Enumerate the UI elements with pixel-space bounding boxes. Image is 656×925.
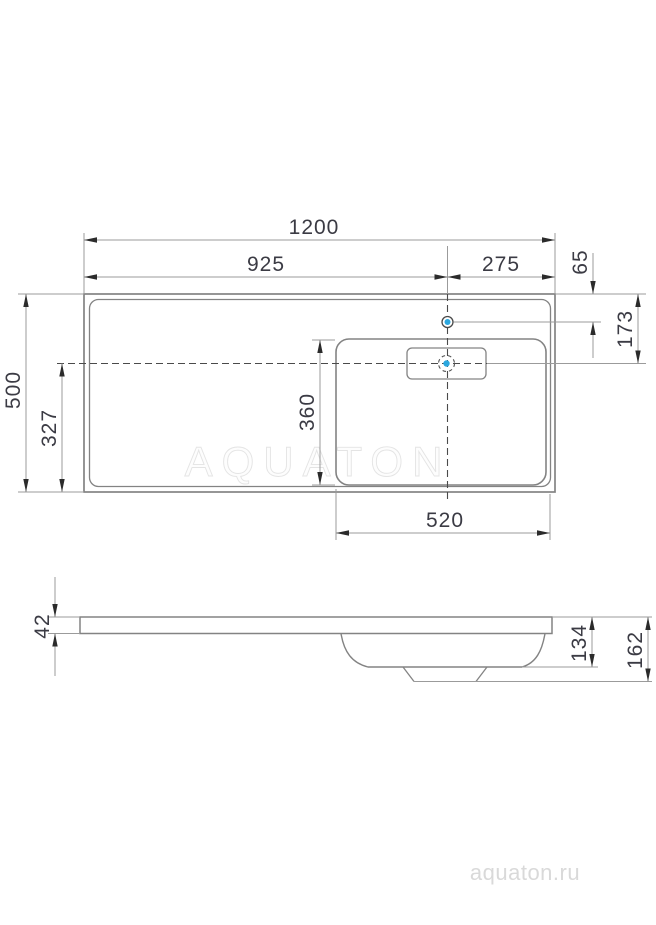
slab-profile: [80, 617, 552, 634]
svg-text:42: 42: [31, 613, 54, 638]
svg-text:360: 360: [296, 393, 319, 431]
dim-faucet-to-right: 275: [448, 253, 556, 280]
dim-back-to-overflow: 173: [614, 294, 641, 364]
svg-text:173: 173: [614, 310, 637, 348]
top-view-drawing: AQUATON: [2, 216, 646, 540]
svg-text:500: 500: [2, 371, 25, 409]
svg-text:162: 162: [624, 631, 647, 669]
dim-front-to-overflow: 327: [38, 364, 65, 493]
dim-slab-thickness: 42: [31, 577, 58, 676]
extension-lines-top-view: [18, 233, 646, 540]
watermark-text: AQUATON: [185, 438, 452, 485]
brand-logo: aquaton.ru: [470, 860, 580, 885]
drain-profile: [403, 667, 487, 682]
dim-bowl-depth: 134: [568, 617, 595, 667]
svg-text:925: 925: [247, 253, 285, 276]
faucet-hole-marker: [442, 317, 453, 328]
technical-drawing-page: AQUATON: [0, 0, 656, 925]
dim-overall-width: 1200: [84, 216, 555, 243]
overflow-hole-marker: [439, 356, 455, 372]
dim-overall-height: 162: [624, 617, 651, 682]
svg-text:1200: 1200: [289, 216, 340, 239]
extension-lines-side-view: [48, 617, 652, 682]
bowl-profile: [341, 634, 545, 668]
dim-back-to-faucet: 65: [569, 249, 596, 358]
svg-text:275: 275: [482, 253, 520, 276]
dim-overall-depth: 500: [2, 294, 29, 492]
svg-text:327: 327: [38, 409, 61, 447]
svg-text:134: 134: [568, 624, 591, 662]
dim-basin-width: 520: [336, 509, 550, 536]
svg-text:520: 520: [426, 509, 464, 532]
side-view-drawing: 42 134 162: [31, 577, 652, 682]
svg-text:65: 65: [569, 249, 592, 274]
dim-left-to-faucet: 925: [84, 253, 448, 280]
